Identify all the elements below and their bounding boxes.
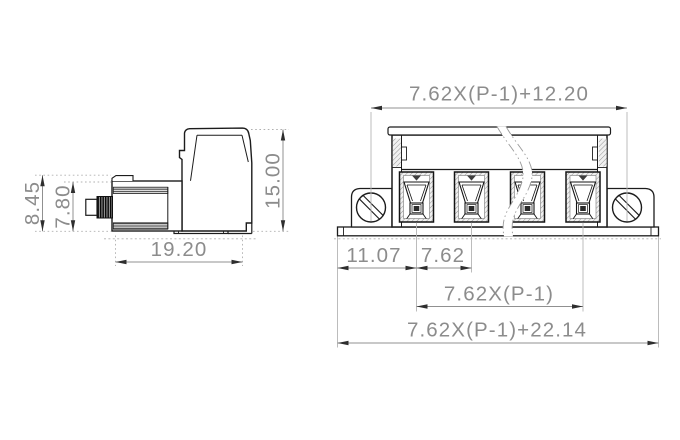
upper-hatch-band <box>113 187 168 193</box>
dim-label-height-inner: 7.80 <box>52 184 75 228</box>
terminal-pole-1 <box>400 172 434 222</box>
technical-drawing-canvas: 8.45 7.80 19.20 15.00 <box>0 0 680 440</box>
left-flange <box>352 189 393 228</box>
thread <box>97 197 113 219</box>
dim-overall-width: 7.62X(P-1)+22.14 <box>338 319 659 346</box>
dim-label-pole-span: 7.62X(P-1) <box>444 283 554 306</box>
stud-cap <box>86 199 97 215</box>
right-flange <box>607 189 654 228</box>
wall-hatch-right <box>599 139 607 167</box>
dim-side-overall-height: 15.00 <box>251 130 289 232</box>
latch-left <box>402 147 407 160</box>
terminal-block-drawing: 8.45 7.80 19.20 15.00 <box>0 0 680 440</box>
side-top-lip <box>112 176 133 181</box>
dim-label-body-width: 19.20 <box>151 238 208 261</box>
dim-label-top-span: 7.62X(P-1)+12.20 <box>409 83 589 106</box>
dim-side-width: 19.20 <box>116 236 243 267</box>
dim-front-bottom: 11.07 7.62 7.62X(P-1) 7.62X(P-1)+22.14 <box>338 223 659 348</box>
side-view: 8.45 7.80 19.20 15.00 <box>21 128 289 266</box>
side-screw-stud <box>86 197 113 219</box>
terminal-pole-4 <box>566 172 600 222</box>
dim-end-offset: 11.07 <box>338 244 417 270</box>
wall-hatch-left <box>393 139 401 167</box>
terminal-pole-2 <box>455 172 489 222</box>
dim-label-overall-width: 7.62X(P-1)+22.14 <box>407 319 587 342</box>
dim-label-height-outer: 8.45 <box>21 181 44 225</box>
lower-hatch-band <box>113 223 168 229</box>
side-plug-body <box>112 176 182 231</box>
dim-pitch: 7.62 <box>417 244 472 270</box>
dim-pole-span: 7.62X(P-1) <box>417 283 584 309</box>
side-hood <box>180 128 252 231</box>
dim-label-pitch: 7.62 <box>421 244 465 267</box>
dim-label-overall-height: 15.00 <box>262 152 285 209</box>
latch-right <box>593 147 598 160</box>
front-view: 7.62X(P-1)+12.20 11.07 7.62 <box>334 83 661 348</box>
base-plate <box>338 227 659 236</box>
dim-label-end-offset: 11.07 <box>346 244 401 267</box>
